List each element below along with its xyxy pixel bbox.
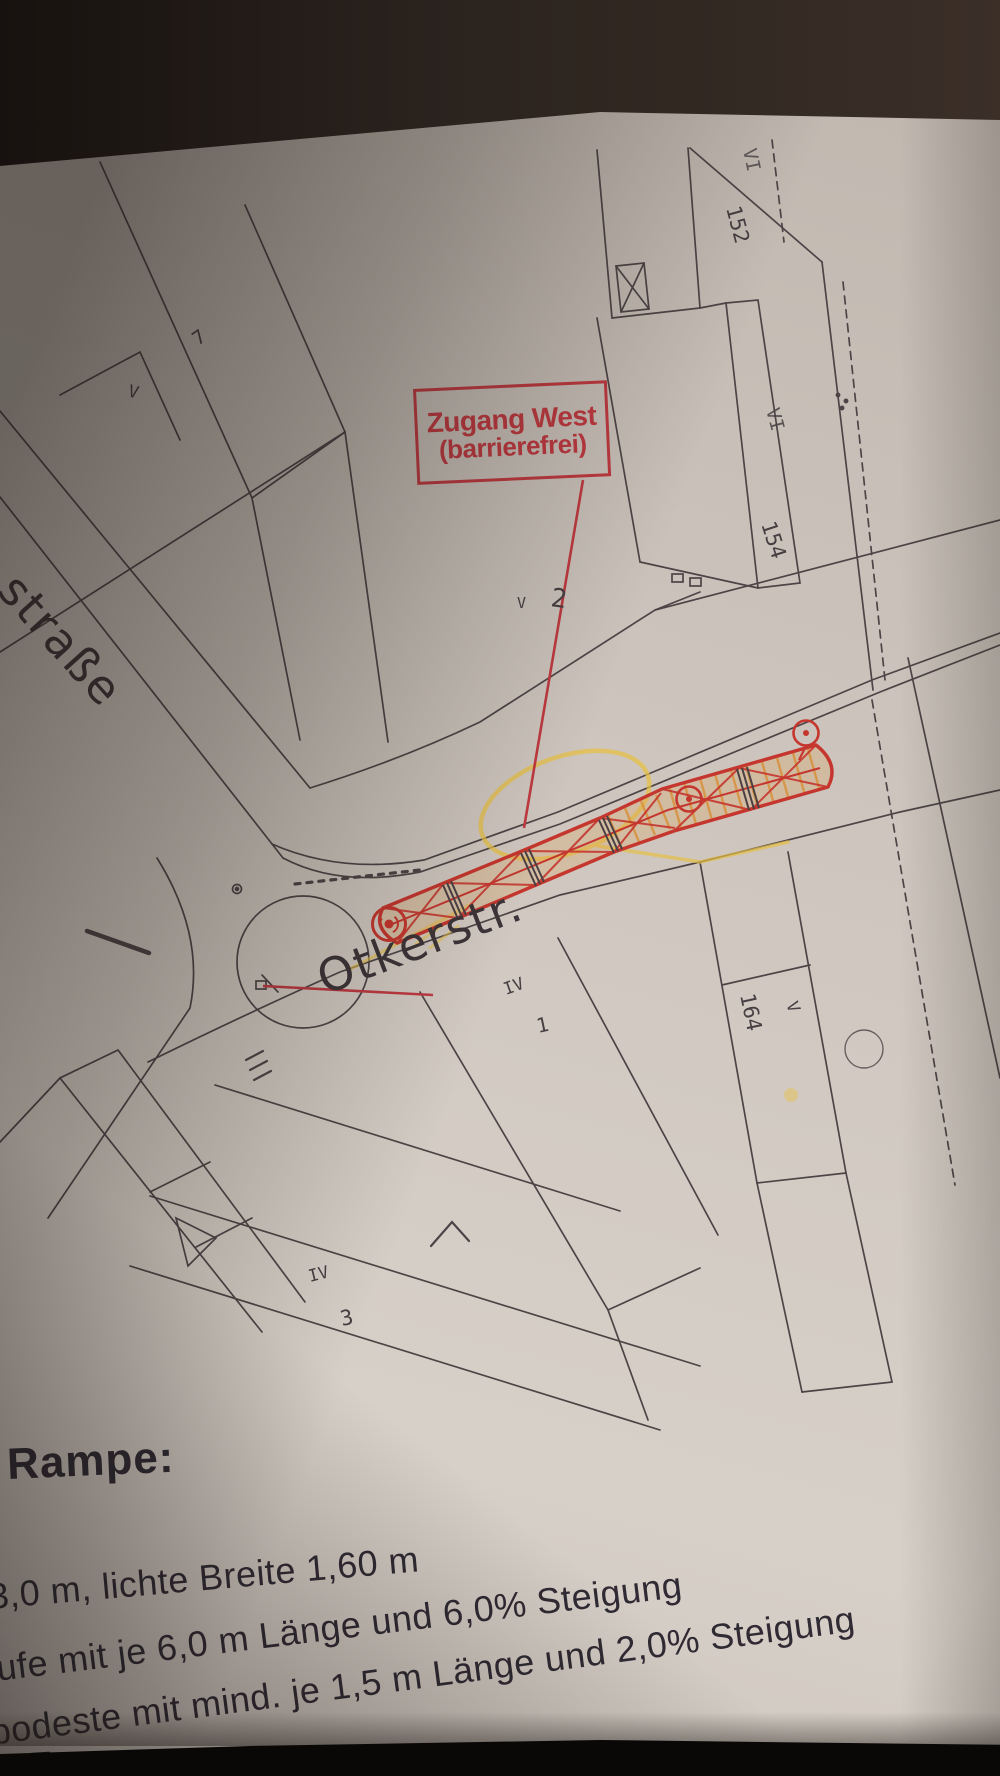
pencil-circle-icon [845,1030,883,1068]
label-floors-vi-top: VI [738,146,764,173]
hatch-mark [246,1051,271,1080]
survey-point-icon [233,885,242,894]
label-building-164: 164 [735,991,766,1033]
note-heading: Rampe: [6,1433,175,1490]
label-floors-v-right: V [781,999,803,1015]
label-mark-v-upper: V [126,382,141,404]
label-house-1: 1 [534,1012,551,1038]
label-house-2: 2 [549,583,569,615]
label-floors-iv-lower: IV [306,1262,331,1286]
label-floors-vi-mid: VI [761,406,788,434]
label-mark-v-mid: V [517,594,526,612]
label-building-152: 152 [721,203,754,246]
site-plan-photo: Otkerstr. straße 152 VI 154 VI 2 7 V V I… [0,0,1000,1776]
label-plot-7: 7 [188,326,210,351]
chevron-mark-icon [431,1222,469,1246]
label-floors-iv-upper: IV [501,974,527,1000]
label-building-154: 154 [756,518,791,561]
annotation-box: Zugang West (barrierefrei) [413,380,611,485]
site-plan-drawing: Otkerstr. straße 152 VI 154 VI 2 7 V V I… [0,0,1000,1776]
plan-linework [0,140,1000,1430]
bold-dash-mark [87,931,149,953]
label-house-3: 3 [338,1305,355,1331]
annotation-leader-line [524,480,583,828]
annotation-line-2: (barrierefrei) [438,430,587,464]
crossed-box-icon [616,263,649,312]
